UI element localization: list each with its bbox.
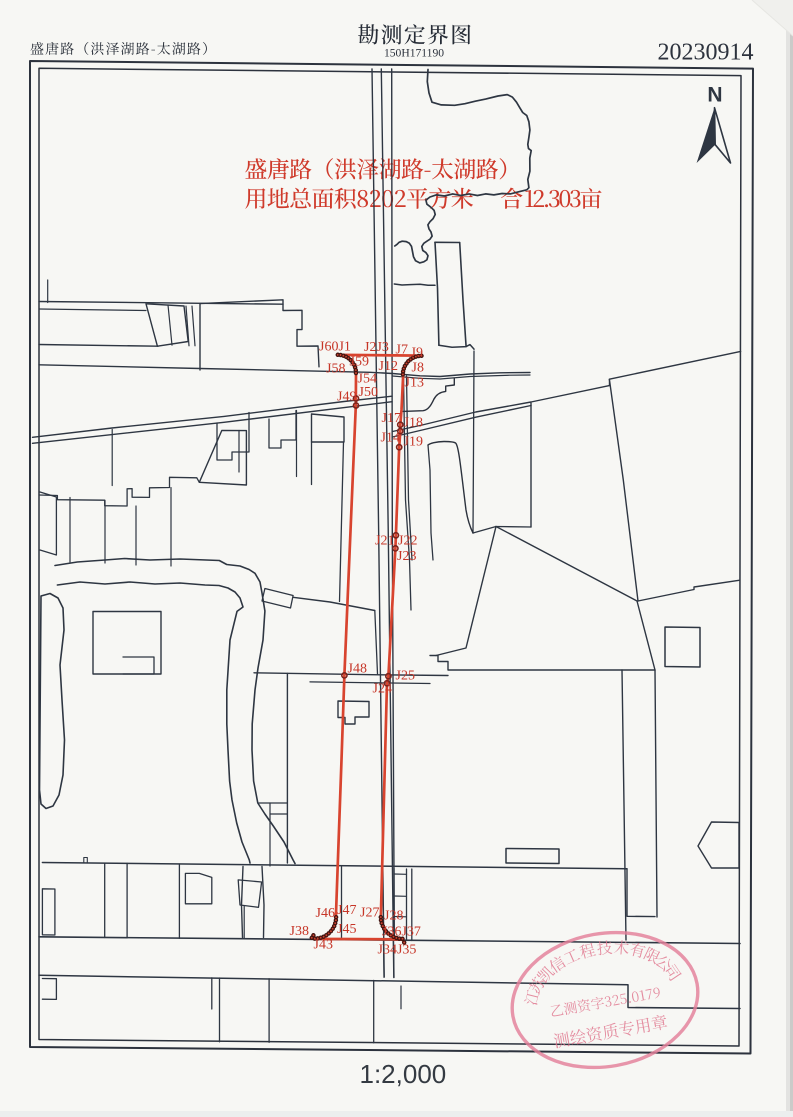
svg-text:J7: J7 — [396, 343, 408, 358]
svg-text:J49: J49 — [337, 390, 356, 405]
svg-text:150H171190: 150H171190 — [384, 47, 444, 60]
svg-text:J8: J8 — [412, 361, 424, 376]
svg-text:1:2,000: 1:2,000 — [360, 1059, 447, 1089]
svg-text:J38: J38 — [290, 924, 309, 939]
svg-text:J12: J12 — [379, 359, 398, 374]
svg-text:J34J35: J34J35 — [378, 943, 417, 958]
svg-text:J25: J25 — [396, 669, 415, 684]
svg-text:J23: J23 — [397, 549, 416, 564]
svg-text:J27: J27 — [360, 906, 379, 921]
svg-text:J18: J18 — [404, 416, 423, 431]
svg-text:J47: J47 — [337, 903, 356, 918]
svg-text:J43: J43 — [314, 938, 333, 953]
svg-text:J21: J21 — [375, 534, 394, 549]
svg-text:J60J1: J60J1 — [319, 340, 351, 355]
svg-text:J45: J45 — [337, 922, 356, 937]
svg-text:J28: J28 — [384, 909, 403, 924]
svg-text:J9: J9 — [411, 346, 423, 361]
svg-text:J19: J19 — [404, 435, 423, 450]
svg-text:J50: J50 — [359, 385, 378, 400]
svg-text:J17: J17 — [382, 411, 401, 426]
svg-text:N: N — [707, 84, 722, 107]
svg-text:J59: J59 — [350, 355, 369, 370]
svg-text:J24: J24 — [373, 682, 392, 697]
svg-text:J13: J13 — [405, 376, 424, 391]
svg-text:J46: J46 — [316, 906, 335, 921]
svg-text:J36J37: J36J37 — [382, 925, 421, 940]
svg-text:20230914: 20230914 — [658, 39, 754, 65]
svg-text:J22: J22 — [398, 534, 417, 549]
svg-text:J14: J14 — [381, 431, 400, 446]
svg-text:J2J3: J2J3 — [364, 340, 389, 355]
svg-text:J58: J58 — [326, 362, 345, 377]
svg-text:J48: J48 — [348, 662, 367, 677]
